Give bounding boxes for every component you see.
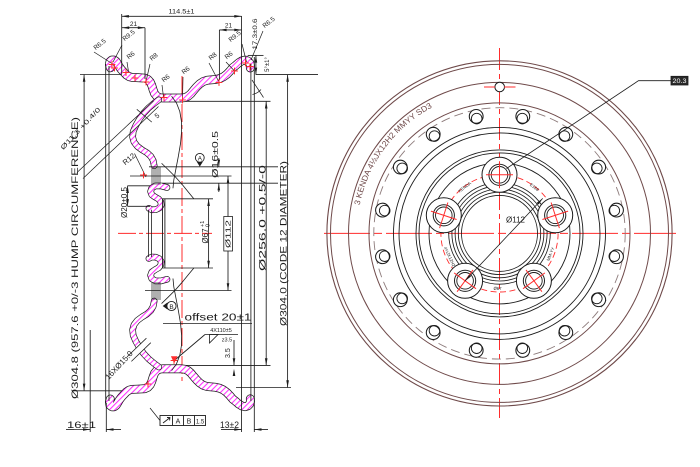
svg-text:0: 0 — [206, 224, 212, 227]
svg-text:Ø256.0 +0.5/-0: Ø256.0 +0.5/-0 — [257, 165, 267, 271]
svg-text:Ø67: Ø67 — [200, 228, 210, 243]
svg-text:Ø16±0.5: Ø16±0.5 — [211, 130, 220, 178]
svg-text:5°±1°: 5°±1° — [265, 57, 271, 72]
svg-text:3.5: 3.5 — [225, 348, 232, 358]
svg-text:Ø20±0.5: Ø20±0.5 — [120, 186, 129, 218]
svg-text:Ø304.8 (957.6 +0/-3 HUMP CIRCU: Ø304.8 (957.6 +0/-3 HUMP CIRCUMFERENCE) — [70, 117, 80, 399]
svg-text:4X110±5: 4X110±5 — [210, 328, 232, 334]
svg-text:offset 20±1: offset 20±1 — [185, 313, 253, 324]
svg-text:1.5: 1.5 — [196, 420, 205, 426]
svg-text:Ø112: Ø112 — [506, 216, 526, 225]
svg-text:A: A — [176, 419, 181, 426]
svg-text:114.5±1: 114.5±1 — [169, 9, 195, 16]
svg-text:Ø67: Ø67 — [493, 286, 502, 291]
svg-text:17.3±0.6: 17.3±0.6 — [252, 18, 259, 49]
svg-text:13±2: 13±2 — [220, 420, 239, 430]
svg-text:Ø304.0 (CODE 12 DIAMETER): Ø304.0 (CODE 12 DIAMETER) — [279, 161, 289, 326]
svg-text:21: 21 — [225, 23, 233, 30]
svg-text:21: 21 — [130, 21, 138, 28]
svg-text:B: B — [187, 419, 192, 426]
svg-text:20.3: 20.3 — [673, 79, 688, 85]
svg-text:Ø112: Ø112 — [224, 220, 233, 248]
svg-text:B: B — [169, 304, 173, 311]
svg-text:z3.5: z3.5 — [222, 338, 232, 344]
